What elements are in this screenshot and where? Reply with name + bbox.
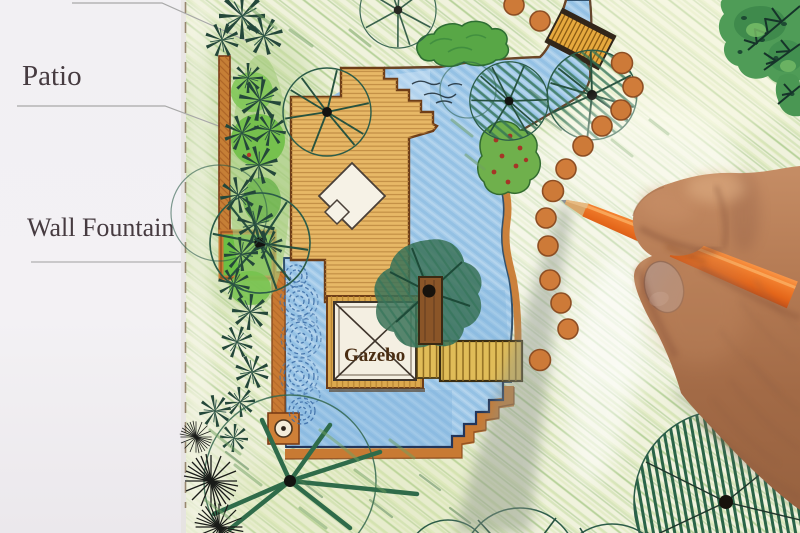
svg-text:Gazebo: Gazebo [344, 345, 405, 366]
svg-text:Patio: Patio [22, 60, 82, 92]
svg-text:Wall Fountain: Wall Fountain [27, 213, 174, 242]
